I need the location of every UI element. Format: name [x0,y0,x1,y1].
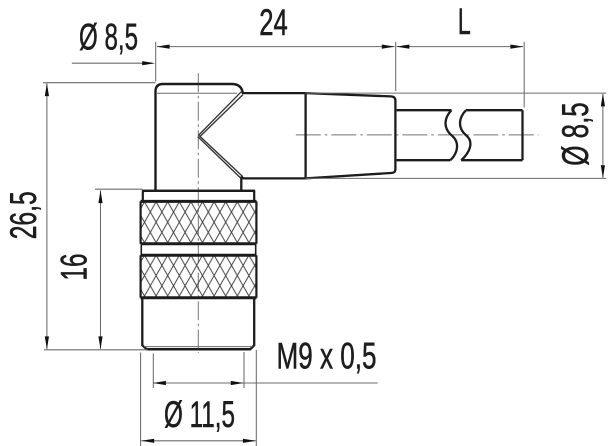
svg-text:26,5: 26,5 [3,191,44,239]
svg-text:M9 x 0,5: M9 x 0,5 [277,335,377,376]
svg-text:24: 24 [259,2,288,43]
svg-text:16: 16 [54,254,95,281]
svg-text:Ø 11,5: Ø 11,5 [164,394,235,435]
svg-text:L: L [458,1,471,42]
svg-text:Ø 8,5: Ø 8,5 [555,102,596,166]
svg-text:Ø 8,5: Ø 8,5 [79,17,138,58]
